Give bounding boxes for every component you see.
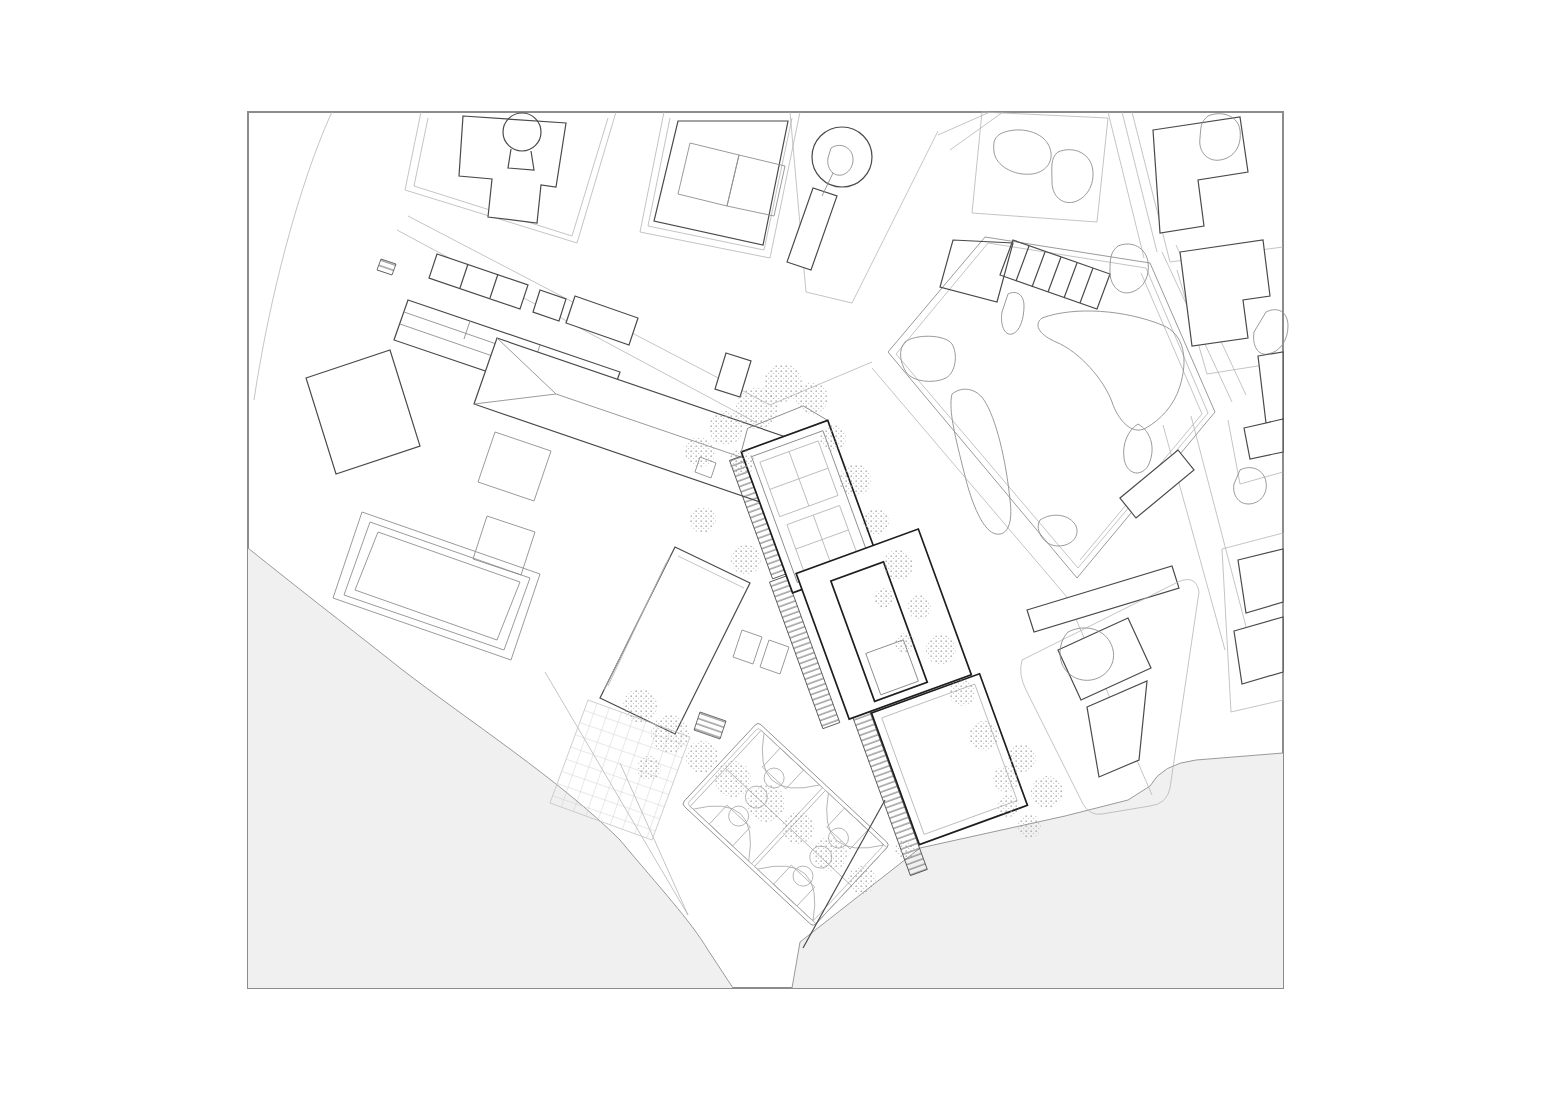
tree-canopy [1031, 776, 1063, 808]
tree-canopy [736, 387, 778, 429]
tree-canopy [690, 507, 716, 533]
tree-canopy [926, 635, 956, 665]
tree-canopy [1017, 814, 1041, 838]
site-plan-drawing [0, 0, 1556, 1100]
tree-canopy [839, 464, 871, 496]
tree-canopy [1008, 744, 1036, 772]
tree-canopy [820, 425, 846, 451]
tree-canopy [907, 595, 931, 619]
tree-canopy [623, 689, 657, 723]
tree-canopy [848, 866, 876, 894]
tree-canopy [747, 784, 785, 822]
tree-canopy [637, 756, 661, 780]
tree-canopy [895, 633, 915, 653]
tree-canopy [874, 588, 894, 608]
tree-canopy [949, 680, 975, 706]
tree-canopy [997, 795, 1019, 817]
tree-canopy [863, 509, 889, 535]
tree-canopy [883, 550, 913, 580]
tree-canopy [969, 721, 999, 751]
tree-canopy [729, 449, 755, 475]
tree-canopy [685, 437, 715, 467]
tree-canopy [651, 715, 689, 753]
tree-canopy [813, 837, 847, 871]
tree-canopy [731, 545, 761, 575]
tree-canopy [686, 741, 718, 773]
tree-canopy [782, 812, 814, 844]
sheet [0, 0, 1556, 1100]
tree-canopy [709, 411, 743, 445]
tree-canopy [715, 761, 751, 797]
tree-canopy [895, 840, 915, 860]
